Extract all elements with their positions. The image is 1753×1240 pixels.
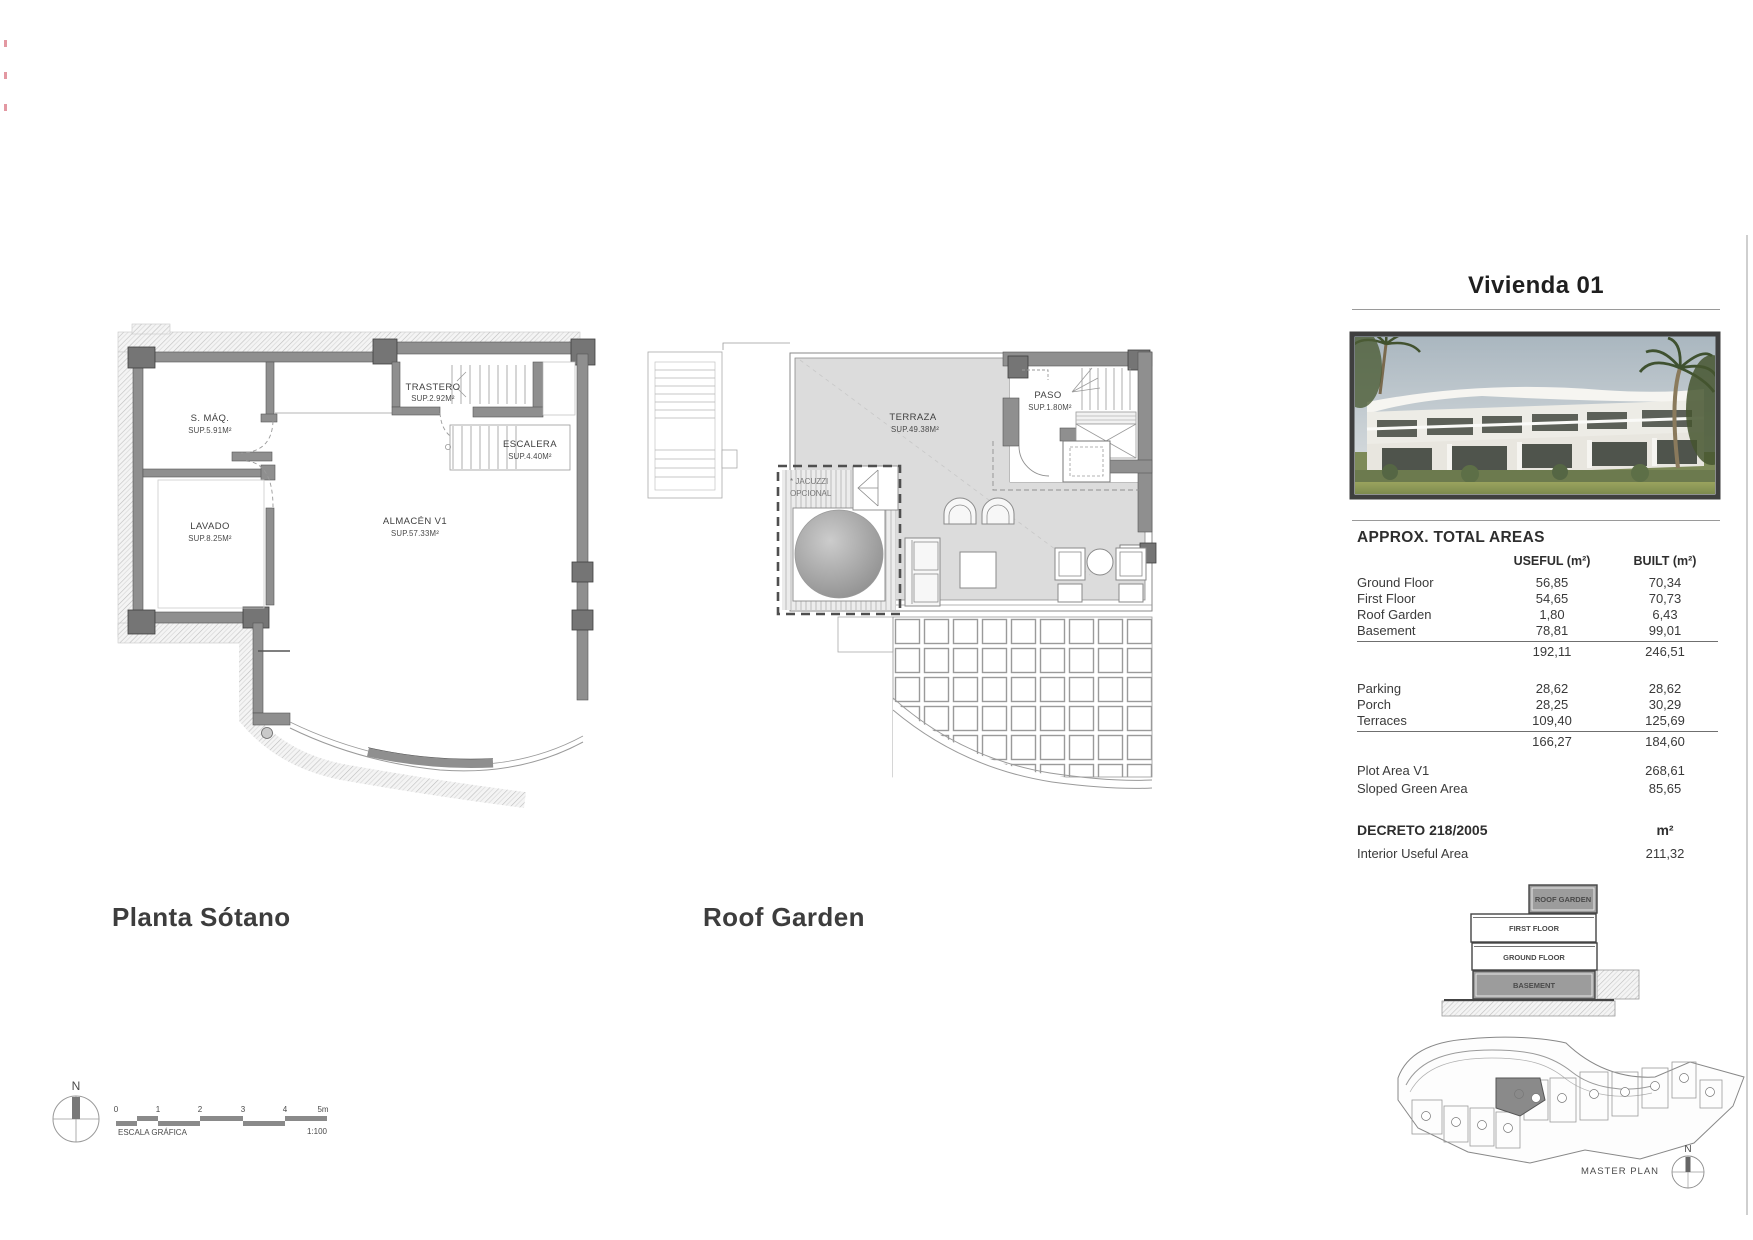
row-built: 99,01 xyxy=(1612,623,1718,639)
row-label: Ground Floor xyxy=(1357,575,1492,591)
col-header-built: BUILT (m²) xyxy=(1612,553,1718,569)
row-label: Plot Area V1 xyxy=(1357,763,1492,779)
scale-tick: 1 xyxy=(156,1105,161,1114)
master-plan-compass: N xyxy=(1672,1144,1704,1188)
edge-mark xyxy=(4,104,7,111)
table-row: Parking 28,62 28,62 xyxy=(1357,681,1718,697)
table-row: Porch 28,25 30,29 xyxy=(1357,697,1718,713)
scale-tick: 3 xyxy=(241,1105,246,1114)
row-useful: 28,25 xyxy=(1492,697,1612,713)
col-header-useful: USEFUL (m²) xyxy=(1492,553,1612,569)
jacuzzi-label-line2: OPCIONAL xyxy=(790,489,832,498)
room-label-lavado: LAVADO xyxy=(190,521,230,532)
total-useful: 192,11 xyxy=(1492,644,1612,660)
areas-header-row: USEFUL (m²) BUILT (m²) xyxy=(1357,553,1718,569)
stack-first-label: FIRST FLOOR xyxy=(1509,924,1560,933)
room-label-trastero: TRASTERO xyxy=(406,382,461,393)
basement-plan-title: Planta Sótano xyxy=(112,902,291,933)
row-label: Sloped Green Area xyxy=(1357,781,1492,797)
master-plan-north-label: N xyxy=(1684,1144,1691,1155)
row-useful: 54,65 xyxy=(1492,591,1612,607)
room-area-lavado: SUP.8.25M² xyxy=(188,534,232,543)
decreto-label: DECRETO 218/2005 xyxy=(1357,822,1492,838)
row-useful: 109,40 xyxy=(1492,713,1612,729)
villa-render-image xyxy=(1338,318,1738,497)
basement-floor-plan: S. MÁQ. SUP.5.91M² LAVADO SUP.8.25M² TRA… xyxy=(118,324,595,800)
table-row: Terraces 109,40 125,69 xyxy=(1357,713,1718,729)
table-row: First Floor 54,65 70,73 xyxy=(1357,591,1718,607)
jacuzzi-label-line1: * JACUZZI xyxy=(790,477,828,486)
room-area-paso: SUP.1.80M² xyxy=(1028,403,1072,412)
room-area-almacen: SUP.57.33M² xyxy=(391,529,439,538)
subtotal-line xyxy=(1357,731,1718,732)
row-built: 28,62 xyxy=(1612,681,1718,697)
room-area-trastero: SUP.2.92M² xyxy=(411,394,455,403)
room-area-escalera: SUP.4.40M² xyxy=(508,452,552,461)
room-area-terraza: SUP.49.38M² xyxy=(891,425,939,434)
row-label: Roof Garden xyxy=(1357,607,1492,623)
row-useful: 56,85 xyxy=(1492,575,1612,591)
compass: N xyxy=(53,1079,99,1142)
scale-label: ESCALA GRÁFICA xyxy=(118,1128,188,1137)
row-built: 6,43 xyxy=(1612,607,1718,623)
total-built: 246,51 xyxy=(1612,644,1718,660)
total-built: 184,60 xyxy=(1612,734,1718,750)
room-label-escalera: ESCALERA xyxy=(503,439,557,450)
plan-sheet: S. MÁQ. SUP.5.91M² LAVADO SUP.8.25M² TRA… xyxy=(0,0,1753,1240)
table-row: Interior Useful Area 211,32 xyxy=(1357,846,1718,862)
scale-tick: 0 xyxy=(114,1105,119,1114)
roof-plan-title: Roof Garden xyxy=(703,902,865,933)
master-plan-label: MASTER PLAN xyxy=(1581,1166,1659,1177)
scale-bar: 0 1 2 3 4 5m ESCALA GRÁFICA 1:100 xyxy=(114,1105,329,1137)
scale-tick: 5m xyxy=(317,1105,328,1114)
room-label-smaq: S. MÁQ. xyxy=(191,413,230,424)
row-useful: 1,80 xyxy=(1492,607,1612,623)
row-built: 30,29 xyxy=(1612,697,1718,713)
row-built: 125,69 xyxy=(1612,713,1718,729)
table-row: Basement 78,81 99,01 xyxy=(1357,623,1718,639)
row-label: Parking xyxy=(1357,681,1492,697)
row-useful: 28,62 xyxy=(1492,681,1612,697)
room-label-almacen: ALMACÉN V1 xyxy=(383,516,447,527)
row-useful: 78,81 xyxy=(1492,623,1612,639)
table-row: Plot Area V1 268,61 xyxy=(1357,763,1718,779)
room-area-smaq: SUP.5.91M² xyxy=(188,426,232,435)
row-label: First Floor xyxy=(1357,591,1492,607)
table-row: Roof Garden 1,80 6,43 xyxy=(1357,607,1718,623)
scale-tick: 2 xyxy=(198,1105,203,1114)
total-useful: 166,27 xyxy=(1492,734,1612,750)
floor-stack-diagram: ROOF GARDEN FIRST FLOOR GROUND FLOOR BAS… xyxy=(1442,885,1639,1016)
row-built: 70,34 xyxy=(1612,575,1718,591)
compass-north-label: N xyxy=(72,1079,81,1093)
row-value: 85,65 xyxy=(1612,781,1718,797)
decreto-unit: m² xyxy=(1612,822,1718,838)
row-value: 268,61 xyxy=(1612,763,1718,779)
table-row: Sloped Green Area 85,65 xyxy=(1357,781,1718,797)
row-label: Porch xyxy=(1357,697,1492,713)
areas-heading: APPROX. TOTAL AREAS xyxy=(1357,529,1545,547)
areas-rule xyxy=(1352,520,1720,521)
scale-tick: 4 xyxy=(283,1105,288,1114)
table-row: Ground Floor 56,85 70,34 xyxy=(1357,575,1718,591)
unit-title: Vivienda 01 xyxy=(1352,272,1720,300)
edge-mark xyxy=(4,72,7,79)
total-row: 192,11 246,51 xyxy=(1357,644,1718,660)
stack-ground-label: GROUND FLOOR xyxy=(1503,953,1565,962)
decreto-row: DECRETO 218/2005 m² xyxy=(1357,822,1718,838)
room-label-paso: PASO xyxy=(1034,390,1061,401)
title-rule xyxy=(1352,309,1720,310)
stack-basement-label: BASEMENT xyxy=(1513,981,1556,990)
edge-mark xyxy=(4,40,7,47)
row-label: Basement xyxy=(1357,623,1492,639)
scale-ratio: 1:100 xyxy=(307,1127,328,1136)
row-label: Terraces xyxy=(1357,713,1492,729)
row-built: 70,73 xyxy=(1612,591,1718,607)
total-row: 166,27 184,60 xyxy=(1357,734,1718,750)
subtotal-line xyxy=(1357,641,1718,642)
stack-roof-label: ROOF GARDEN xyxy=(1535,895,1591,904)
row-label: Interior Useful Area xyxy=(1357,846,1492,862)
row-value: 211,32 xyxy=(1612,846,1718,862)
room-label-terraza: TERRAZA xyxy=(889,412,936,423)
roof-garden-plan: * JACUZZI OPCIONAL xyxy=(648,343,1156,805)
master-plan: MASTER PLAN N xyxy=(1398,1037,1744,1188)
